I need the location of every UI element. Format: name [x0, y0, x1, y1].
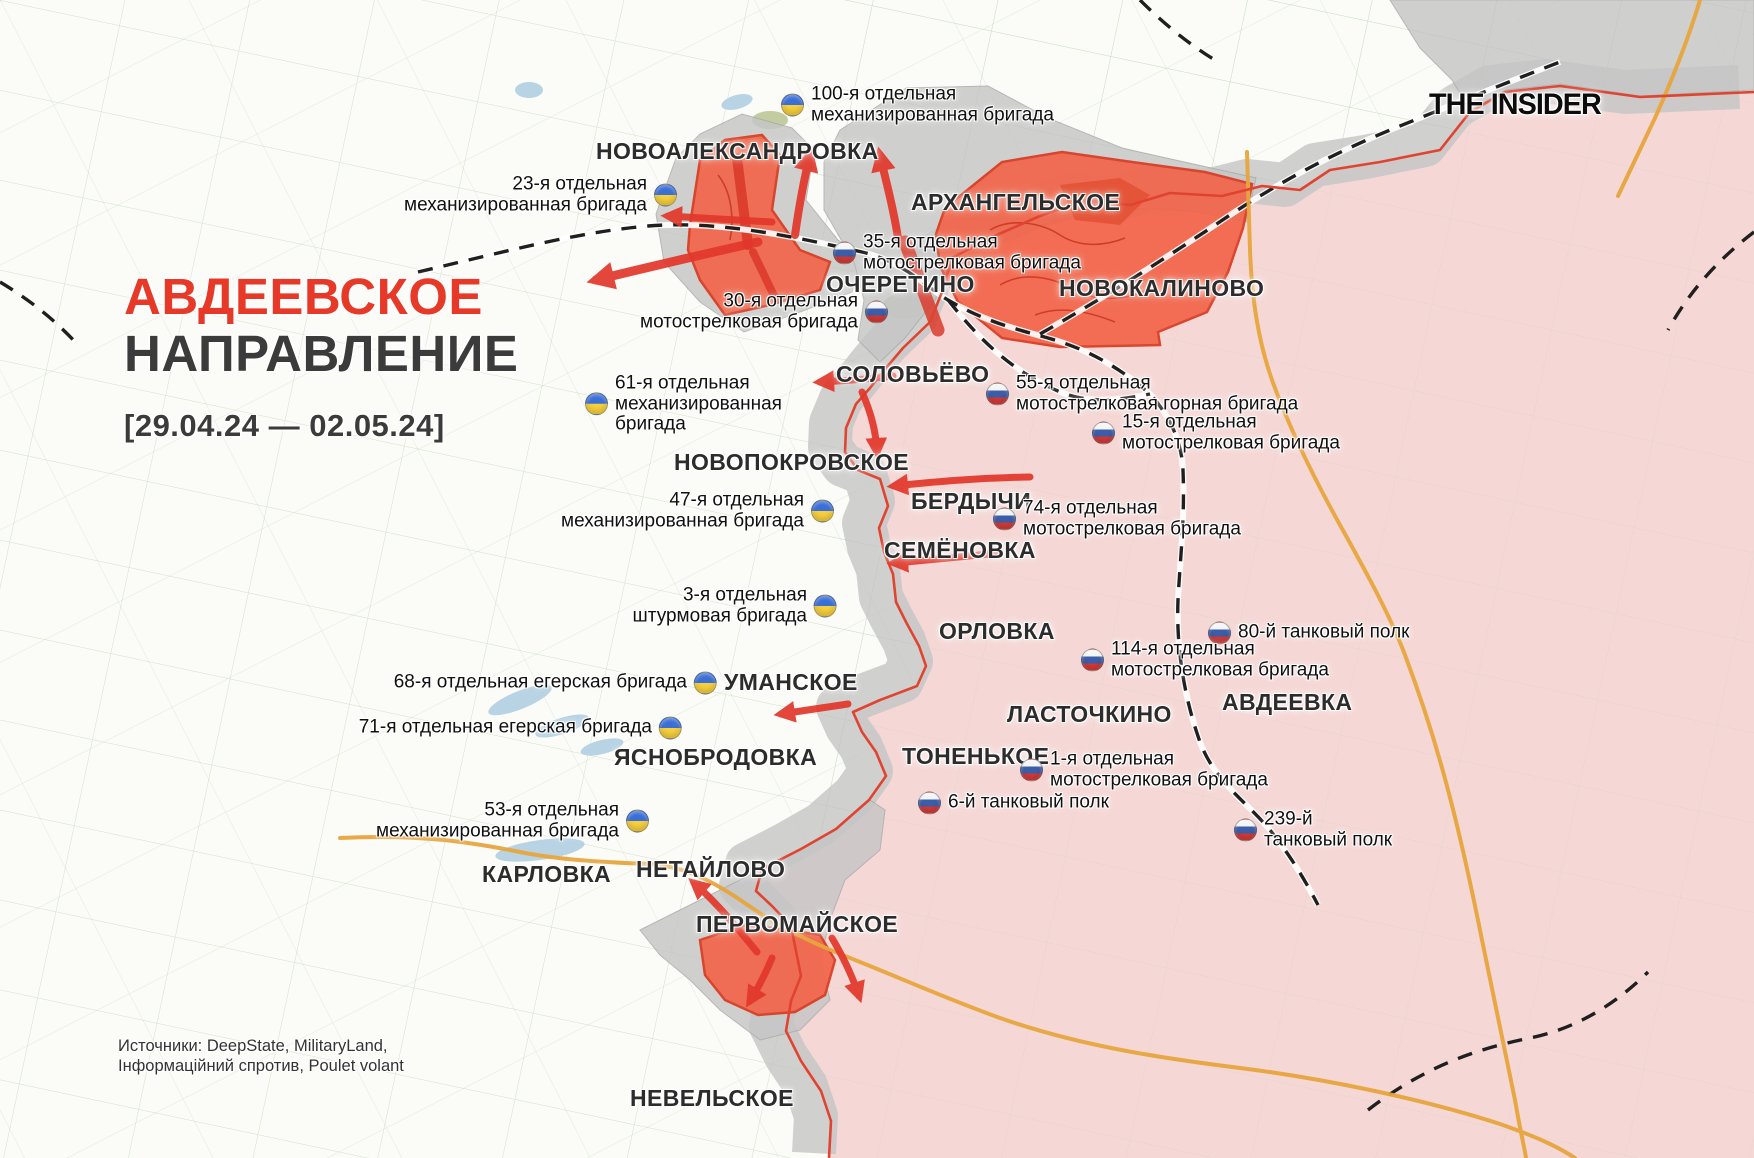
map-screenshot: НОВОАЛЕКСАНДРОВКААРХАНГЕЛЬСКОЕОЧЕРЕТИНОН… [0, 0, 1754, 1158]
base-map [0, 0, 1754, 1158]
page-title-line2: НАПРАВЛЕНИЕ [124, 325, 518, 382]
date-range: [29.04.24 — 02.05.24] [124, 408, 518, 444]
field-grid-overlay [820, 0, 1754, 1158]
sources-note: Источники: DeepState, MilitaryLand, Інфо… [118, 1037, 404, 1076]
page-title-line1: АВДЕЕВСКОЕ [124, 268, 518, 325]
map-title-block: АВДЕЕВСКОЕ НАПРАВЛЕНИЕ [29.04.24 — 02.05… [124, 268, 518, 444]
sources-line1: Источники: DeepState, MilitaryLand, [118, 1037, 404, 1057]
the-insider-logo: THE INSIDER [1429, 88, 1601, 122]
sources-line2: Інформаційний спротив, Poulet volant [118, 1057, 404, 1077]
